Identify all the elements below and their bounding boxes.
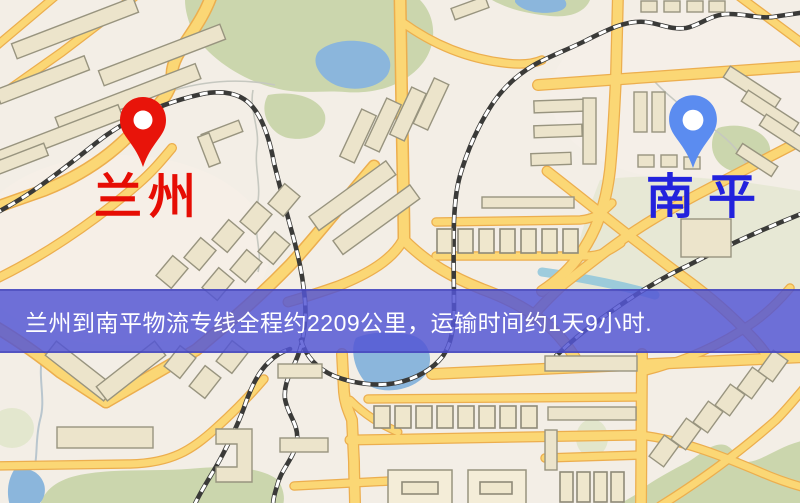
nanping-label: 南平 — [646, 174, 770, 222]
map-view: 兰州 南平 兰州到南平物流专线全程约2209公里，运输时间约1天9小时. — [0, 0, 800, 503]
route-info-banner: 兰州到南平物流专线全程约2209公里，运输时间约1天9小时. — [0, 289, 800, 353]
lanzhou-label: 兰州 — [94, 174, 202, 222]
route-info-text: 兰州到南平物流专线全程约2209公里，运输时间约1天9小时. — [25, 304, 652, 338]
map-canvas[interactable] — [0, 0, 800, 503]
